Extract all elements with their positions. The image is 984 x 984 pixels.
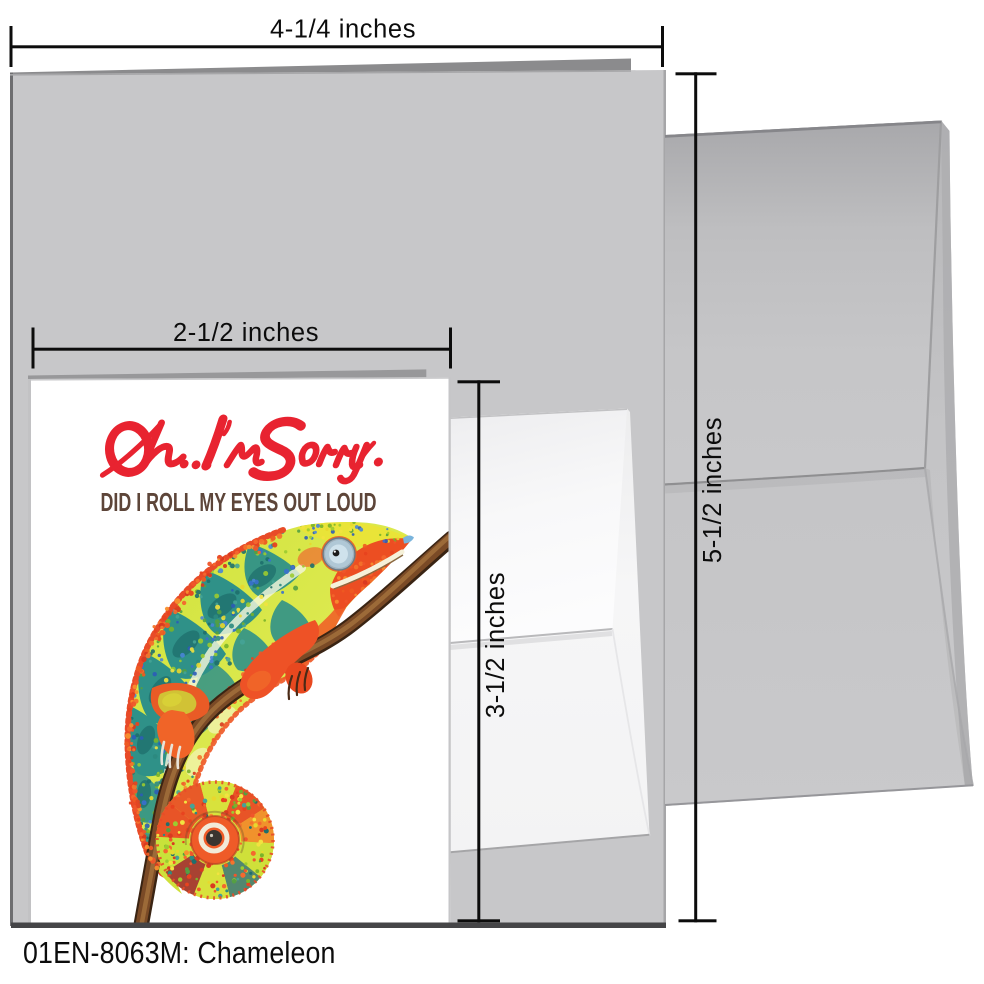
svg-text:4-1/4 inches: 4-1/4 inches (270, 16, 416, 44)
svg-text:5-1/2 inches: 5-1/2 inches (699, 417, 727, 563)
svg-text:2-1/2 inches: 2-1/2 inches (173, 319, 319, 347)
svg-text:DID I ROLL MY EYES OUT LOUD: DID I ROLL MY EYES OUT LOUD (101, 488, 377, 517)
svg-text:3-1/2 inches: 3-1/2 inches (482, 572, 510, 718)
svg-text:01EN-8063M: Chameleon: 01EN-8063M: Chameleon (23, 936, 336, 970)
